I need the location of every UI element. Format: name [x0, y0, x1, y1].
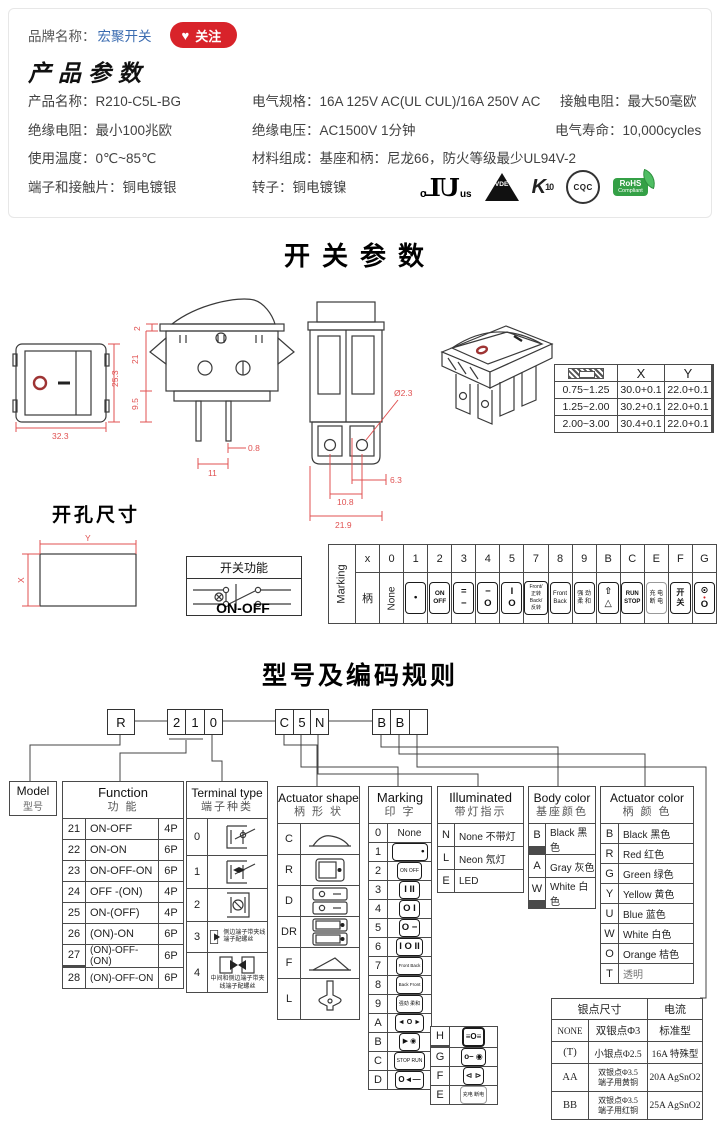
code-box-style: C5N: [275, 709, 329, 735]
illuminated-table: Illuminated带灯指示 NNone 不带灯 LNeon 氖灯 ELED: [437, 786, 524, 893]
shape-icon-dr: [301, 917, 359, 947]
marking-charge: 充 电断 电: [645, 573, 668, 623]
isometric-view-drawing: [442, 326, 552, 424]
side-view-drawing: 2 21 9.5 0.8 11: [130, 299, 294, 478]
svg-text:6.3: 6.3: [390, 475, 402, 485]
marking-dot: •: [404, 573, 427, 623]
hatch-icon: [555, 365, 617, 381]
cutout-drawing: Y X: [14, 532, 164, 620]
spec-rotor-plating: 转子：铜电镀镍: [252, 176, 347, 196]
brand-label: 品牌名称：: [28, 25, 96, 45]
marking-code-table: Marking印 字 0None 1• 2ON OFF 3I II 4O I 5…: [368, 786, 432, 1090]
coding-rules-title: 型号及编码规则: [0, 656, 720, 692]
function-table: Function功 能 21ON-OFF4P 22ON-ON6P 23ON-OF…: [62, 781, 184, 989]
marking-power-symbols: ⊙•O: [693, 573, 716, 623]
marking-dash-o: −O: [476, 573, 499, 623]
spec-insulation-resistance: 绝缘电阻：最小100兆欧: [28, 119, 172, 139]
handle-label: 柄: [356, 573, 379, 623]
front-view-drawing: 32.3 25.3: [13, 344, 120, 441]
actuator-color-table: Actuator color柄 颜 色 BBlack 黑色 RRed 红色 GG…: [600, 786, 694, 984]
brand-name-link[interactable]: 宏聚开关: [98, 25, 152, 45]
svg-text:Ø2.3: Ø2.3: [394, 388, 413, 398]
on-off-label: ON-OFF: [186, 600, 300, 616]
terminal-type-table: Terminal type端子种类 0 1 2 3 侧边端子带夹线端子配螺丝 4…: [186, 781, 268, 993]
terminal-icon-1: [208, 856, 267, 888]
cqc-icon: CQC: [566, 170, 600, 204]
svg-text:2: 2: [132, 326, 142, 331]
certification-row: c UL us VDE K10 CQC RoHSCompliant: [420, 170, 648, 204]
cul-us-icon: c UL us: [420, 173, 472, 202]
spec-insulation-voltage: 绝缘电压：AC1500V 1分钟: [252, 119, 416, 139]
svg-text:X: X: [16, 577, 26, 583]
product-params-title: 产品参数: [28, 54, 148, 88]
terminal-icon-3: 侧边端子带夹线端子配螺丝: [208, 922, 267, 952]
switch-params-title: 开关参数: [0, 236, 720, 273]
marking-bars: =−: [452, 573, 475, 623]
shape-icon-d: [301, 886, 359, 916]
svg-text:25.3: 25.3: [110, 370, 120, 387]
code-box-series: R: [107, 709, 135, 735]
spec-operating-temp: 使用温度：0℃~85℃: [28, 147, 156, 167]
svg-text:10.8: 10.8: [337, 497, 354, 507]
svg-text:21.9: 21.9: [335, 520, 352, 530]
marking-strong-soft: 强 劲柔 和: [573, 573, 596, 623]
product-spec-page: 品牌名称： 宏聚开关 ♥ 关注 产品参数 产品名称：R210-C5L-BG 电气…: [0, 0, 720, 1121]
follow-label: 关注: [195, 26, 221, 45]
xy-dimension-table: X Y 0.75~1.2530.0+0.122.0+0.1 1.25~2.003…: [554, 364, 714, 433]
body-color-table: Body color基座颜色 BBlack 黑色 AGray 灰色 WWhite…: [528, 786, 596, 909]
cutout-title: 开孔尺寸: [52, 500, 140, 527]
svg-text:32.3: 32.3: [52, 431, 69, 441]
marking-front-back-cn: Front/正转Back/反转: [524, 573, 547, 623]
enec-icon: K10: [532, 176, 553, 199]
marking-none: None: [380, 573, 403, 623]
terminal-icon-4: 中间和侧边端子带夹线端子配螺丝: [208, 953, 267, 992]
spec-terminal-plating: 端子和接触片：铜电镀银: [28, 176, 177, 196]
follow-button[interactable]: ♥ 关注: [170, 22, 238, 48]
svg-text:21: 21: [130, 354, 140, 364]
spec-product-name: 产品名称：R210-C5L-BG: [28, 90, 181, 110]
marking-wind-icons: ⇧△: [597, 573, 620, 623]
marking-on-off: ONOFF: [428, 573, 451, 623]
model-table: Model 型号: [9, 781, 57, 816]
marking-strip-table: Marking x0 12 34 57 89 BC EF G 柄 None • …: [328, 544, 717, 624]
shape-icon-l: [301, 979, 359, 1019]
rohs-icon: RoHSCompliant: [613, 178, 648, 197]
heart-icon: ♥: [182, 28, 190, 43]
switch-function-title: 开关功能: [187, 557, 301, 579]
marking-i-o: IO: [500, 573, 523, 623]
rear-view-drawing: Ø2.3 6.3 10.8 21.9: [308, 302, 413, 530]
spec-material: 材料组成：基座和柄：尼龙66，防火等级最少UL94V-2: [252, 147, 576, 167]
marking-front-back: FrontBack: [549, 573, 572, 623]
spec-electrical-rating: 电气规格：16A 125V AC(UL CUL)/16A 250V AC: [252, 90, 540, 110]
actuator-shape-table: Actuator shape柄 形 状 C R D DR F L: [277, 786, 360, 1020]
marking-code-table-extra: H≡O≡ Go– ◉ F⊲ ⊳ E充电 断电: [430, 1026, 498, 1105]
marking-run-stop: RUNSTOP: [621, 573, 644, 623]
terminal-icon-0: [208, 819, 267, 855]
silver-point-table: 银点尺寸 电流 NONE 双银点Φ3 标准型 (T) 小银点Φ2.5 16A 特…: [551, 998, 703, 1120]
svg-text:Y: Y: [85, 533, 91, 543]
spec-electrical-life: 电气寿命：10,000cycles: [555, 119, 701, 139]
marking-kai-guan: 开关: [669, 573, 692, 623]
code-box-model: 210: [167, 709, 223, 735]
brand-row: 品牌名称： 宏聚开关 ♥ 关注: [28, 22, 237, 48]
marking-strip-label: Marking: [329, 545, 355, 623]
svg-text:11: 11: [208, 468, 217, 478]
vde-icon: VDE: [485, 173, 519, 201]
code-box-color: BB: [372, 709, 428, 735]
shape-icon-c: [301, 824, 359, 854]
shape-icon-r: [301, 855, 359, 885]
terminal-icon-2: [208, 889, 267, 921]
svg-text:0.8: 0.8: [248, 443, 260, 453]
svg-text:9.5: 9.5: [130, 398, 140, 410]
shape-icon-f: [301, 948, 359, 978]
spec-contact-resistance: 接触电阻：最大50毫欧: [560, 90, 697, 110]
